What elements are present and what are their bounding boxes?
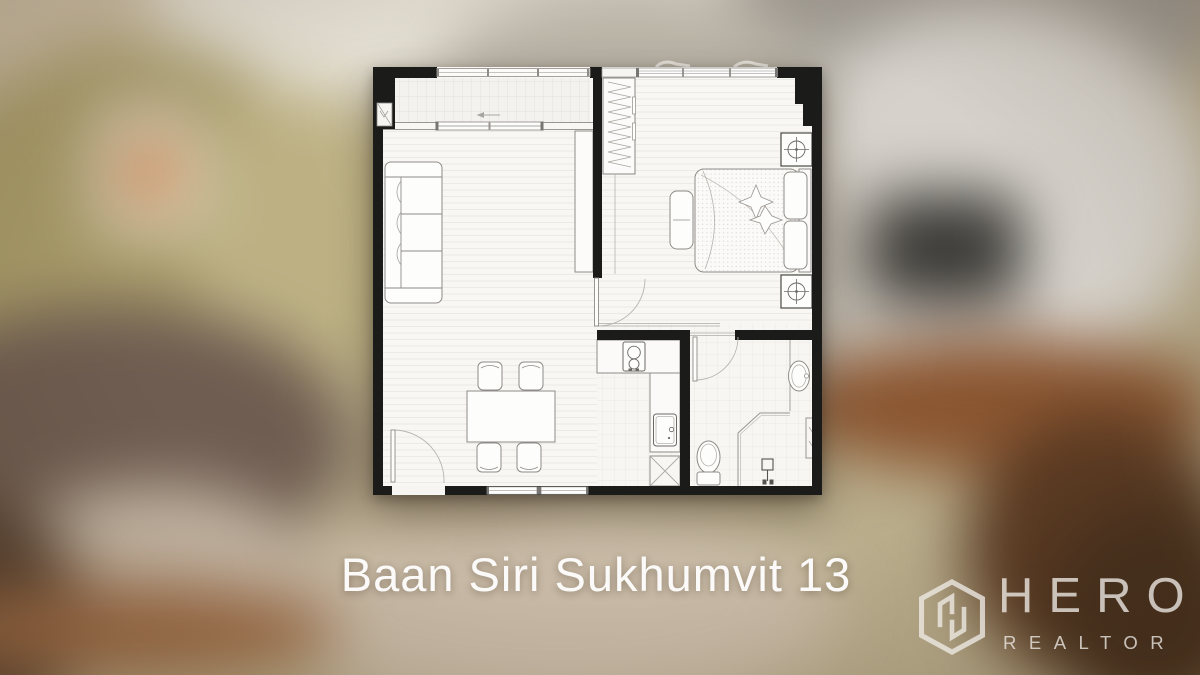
tv-console xyxy=(575,131,593,272)
aircon-unit xyxy=(781,275,812,308)
living-room-windows xyxy=(487,487,589,495)
floor-plan-drawing xyxy=(373,67,822,495)
balcony-railing xyxy=(437,69,590,77)
pillow xyxy=(784,221,807,269)
listing-card: Baan Siri Sukhumvit 13 HERO REALTOR xyxy=(0,0,1200,675)
floor-plan xyxy=(373,67,822,495)
project-title: Baan Siri Sukhumvit 13 xyxy=(341,547,852,602)
hero-hexagon-icon xyxy=(916,578,988,656)
bedroom-wall-thin xyxy=(602,68,637,77)
wardrobe xyxy=(603,78,636,174)
pillow xyxy=(784,172,807,219)
entrance-threshold xyxy=(392,486,445,495)
toilet xyxy=(697,441,720,485)
dining-table xyxy=(467,391,555,442)
aircon-unit xyxy=(781,133,812,166)
dining-chair xyxy=(477,443,501,472)
brand-name: HERO xyxy=(998,572,1200,621)
bedside-bench xyxy=(670,191,693,249)
kitchen-sink xyxy=(654,414,677,446)
stove xyxy=(623,342,645,371)
hero-realtor-watermark: HERO REALTOR xyxy=(916,572,1188,668)
bed xyxy=(695,169,811,272)
service-shaft xyxy=(377,103,392,126)
sofa xyxy=(385,162,442,303)
bedroom-window xyxy=(636,68,778,77)
dining-chair xyxy=(478,362,502,390)
dining-chair xyxy=(517,443,541,472)
service-shaft xyxy=(650,456,680,486)
dining-chair xyxy=(519,362,543,390)
brand-tagline: REALTOR xyxy=(1003,634,1176,653)
wash-basin xyxy=(789,361,810,391)
